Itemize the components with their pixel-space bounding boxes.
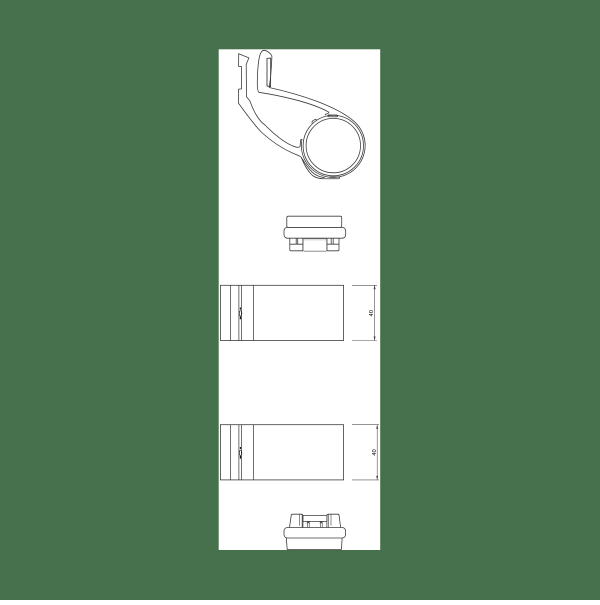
svg-text:40: 40 [369,310,375,316]
svg-text:40: 40 [372,449,378,455]
